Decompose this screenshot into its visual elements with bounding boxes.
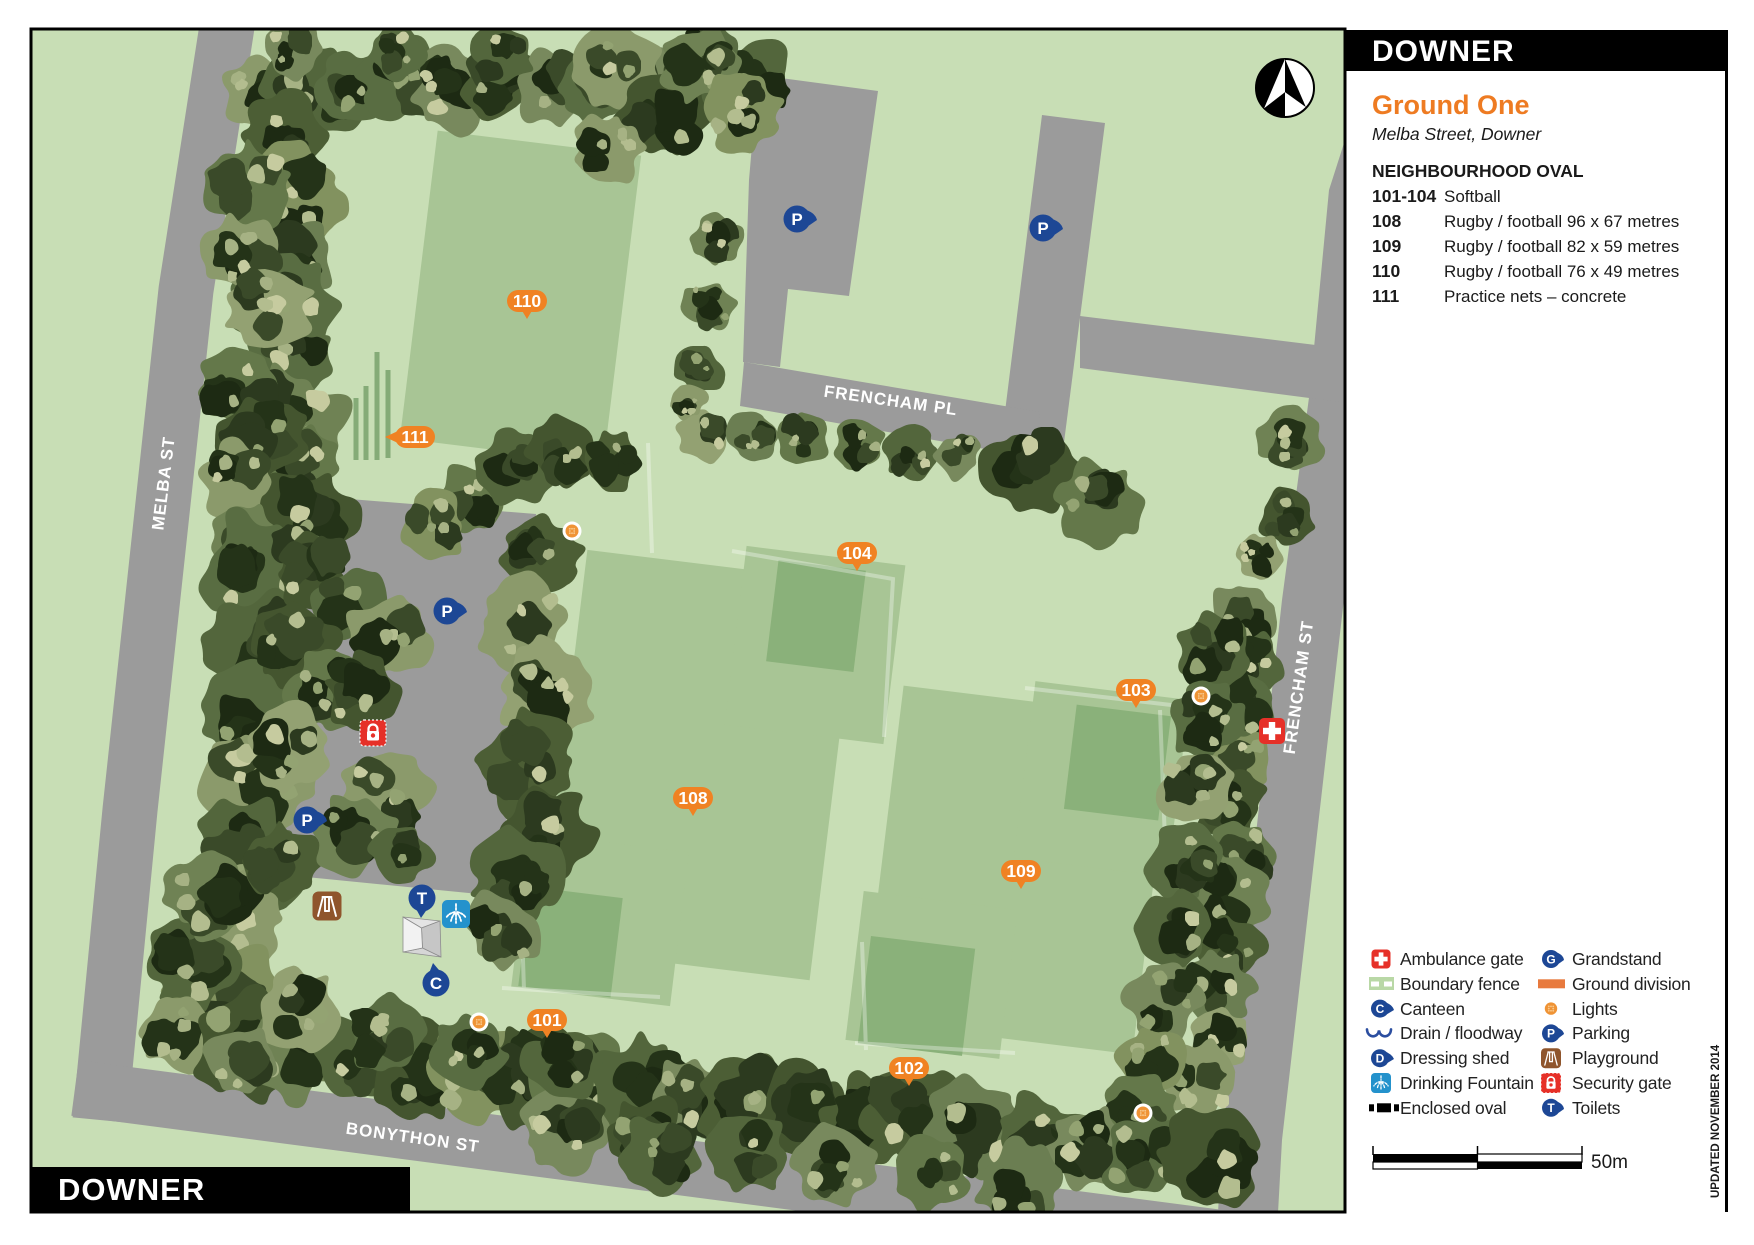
svg-text:C: C <box>1376 1002 1385 1016</box>
svg-text:Boundary fence: Boundary fence <box>1400 974 1520 994</box>
svg-text:50m: 50m <box>1591 1152 1628 1173</box>
svg-text:G: G <box>1546 952 1555 966</box>
svg-text:Rugby / football 82 x 59 metre: Rugby / football 82 x 59 metres <box>1444 237 1679 256</box>
svg-text:Drain / floodway: Drain / floodway <box>1400 1023 1523 1043</box>
svg-text:108: 108 <box>1372 211 1401 231</box>
svg-text:P: P <box>1037 219 1048 238</box>
svg-text:Playground: Playground <box>1572 1048 1659 1068</box>
svg-text:Ground One: Ground One <box>1372 90 1530 120</box>
svg-text:UPDATED NOVEMBER 2014: UPDATED NOVEMBER 2014 <box>1710 1044 1722 1198</box>
svg-text:101: 101 <box>532 1010 561 1030</box>
svg-text:P: P <box>791 210 802 229</box>
svg-text:110: 110 <box>513 291 541 311</box>
svg-text:DOWNER: DOWNER <box>1372 35 1515 68</box>
svg-text:P: P <box>1547 1027 1555 1041</box>
svg-text:Softball: Softball <box>1444 187 1501 206</box>
svg-text:Melba Street, Downer: Melba Street, Downer <box>1372 124 1542 144</box>
svg-text:Rugby / football 96 x 67 metre: Rugby / football 96 x 67 metres <box>1444 212 1679 231</box>
svg-text:P: P <box>441 602 452 621</box>
svg-text:Parking: Parking <box>1572 1023 1630 1043</box>
svg-text:101-104: 101-104 <box>1372 186 1436 206</box>
svg-text:Dressing shed: Dressing shed <box>1400 1048 1509 1068</box>
svg-text:Ambulance gate: Ambulance gate <box>1400 949 1524 969</box>
svg-text:Canteen: Canteen <box>1400 999 1465 1019</box>
svg-text:109: 109 <box>1006 861 1035 881</box>
svg-text:104: 104 <box>842 543 871 563</box>
svg-text:Enclosed oval: Enclosed oval <box>1400 1098 1506 1118</box>
svg-text:T: T <box>417 889 428 908</box>
svg-text:NEIGHBOURHOOD OVAL: NEIGHBOURHOOD OVAL <box>1372 161 1584 181</box>
svg-text:109: 109 <box>1372 236 1401 256</box>
svg-text:T: T <box>1547 1101 1555 1115</box>
svg-text:Drinking Fountain: Drinking Fountain <box>1400 1073 1534 1093</box>
svg-text:111: 111 <box>401 427 429 447</box>
svg-text:108: 108 <box>678 788 707 808</box>
svg-text:P: P <box>301 811 312 830</box>
svg-text:Ground division: Ground division <box>1572 974 1691 994</box>
svg-text:Lights: Lights <box>1572 999 1618 1019</box>
svg-text:D: D <box>1376 1052 1385 1066</box>
svg-text:DOWNER: DOWNER <box>58 1172 205 1207</box>
svg-text:Grandstand: Grandstand <box>1572 949 1661 969</box>
svg-text:103: 103 <box>1121 680 1150 700</box>
svg-text:C: C <box>430 974 442 993</box>
svg-text:111: 111 <box>1372 286 1400 306</box>
svg-text:Security gate: Security gate <box>1572 1073 1672 1093</box>
svg-text:102: 102 <box>894 1058 923 1078</box>
svg-text:Practice nets – concrete: Practice nets – concrete <box>1444 287 1626 306</box>
svg-text:110: 110 <box>1372 261 1400 281</box>
svg-text:Toilets: Toilets <box>1572 1098 1621 1118</box>
svg-text:Rugby / football 76 x 49 metre: Rugby / football 76 x 49 metres <box>1444 262 1679 281</box>
